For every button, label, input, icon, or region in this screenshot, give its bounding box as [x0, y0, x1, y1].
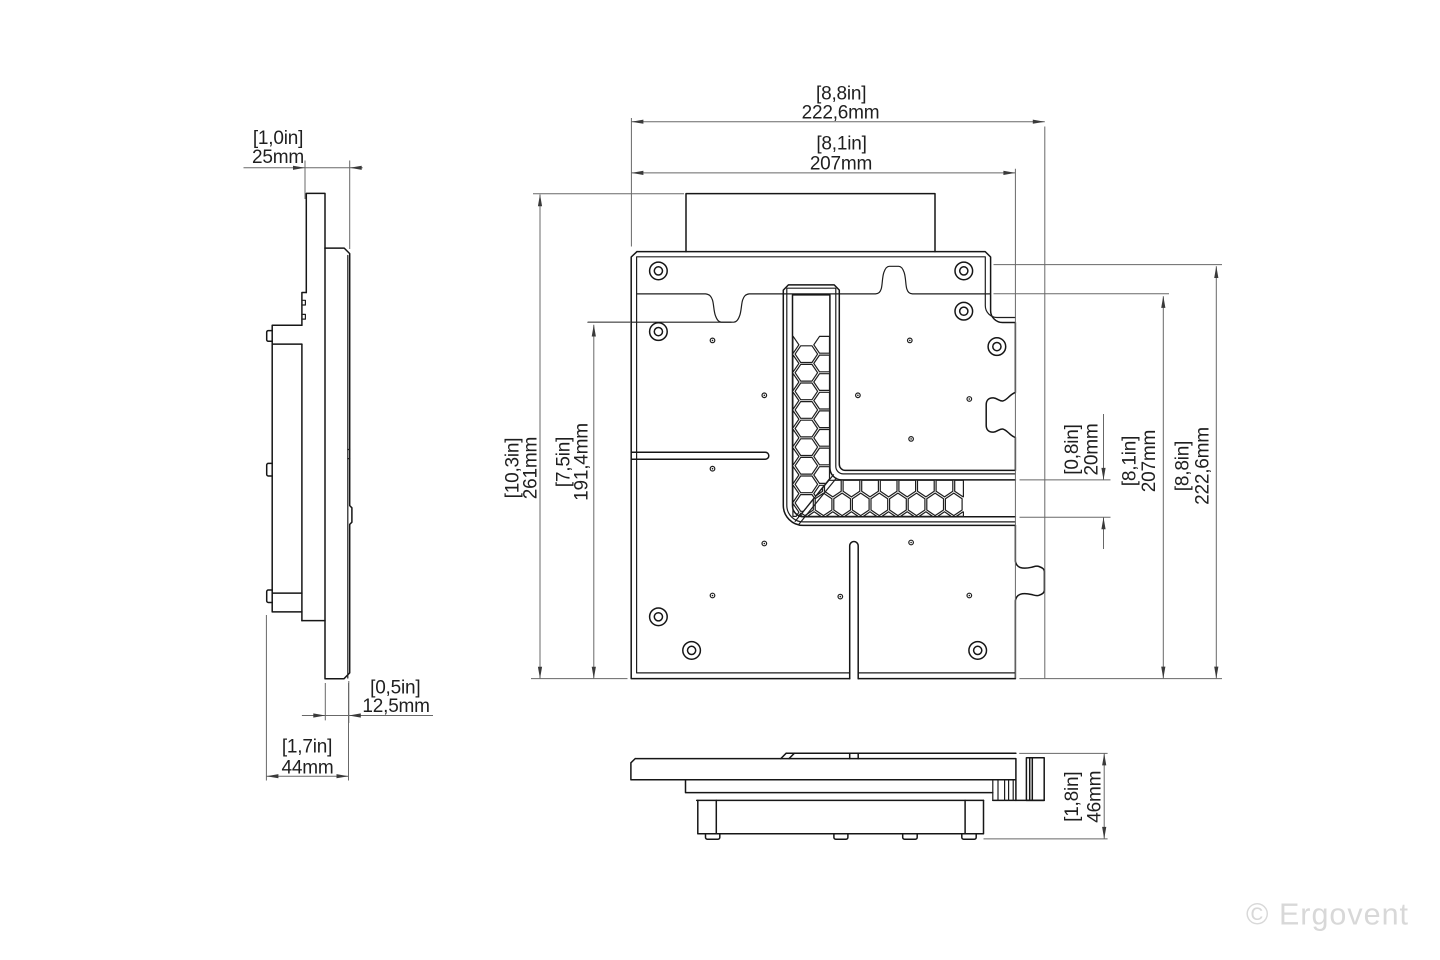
svg-text:20mm: 20mm [1082, 424, 1103, 476]
svg-text:207mm: 207mm [1139, 430, 1160, 492]
svg-text:[8,1in]: [8,1in] [1120, 436, 1141, 486]
svg-text:207mm: 207mm [810, 153, 872, 174]
svg-text:[8,8in]: [8,8in] [1173, 441, 1194, 491]
svg-text:[1,0in]: [1,0in] [253, 128, 303, 149]
svg-text:12,5mm: 12,5mm [362, 696, 429, 717]
svg-text:261mm: 261mm [521, 437, 542, 499]
svg-text:46mm: 46mm [1085, 771, 1106, 823]
svg-text:222,6mm: 222,6mm [802, 102, 880, 123]
svg-text:222,6mm: 222,6mm [1193, 427, 1214, 505]
svg-text:[0,8in]: [0,8in] [1062, 424, 1083, 474]
svg-text:44mm: 44mm [282, 758, 334, 779]
svg-text:[8,1in]: [8,1in] [816, 133, 866, 154]
svg-text:© Ergovent: © Ergovent [1246, 898, 1409, 932]
svg-text:[1,7in]: [1,7in] [282, 737, 332, 758]
svg-text:[1,8in]: [1,8in] [1062, 772, 1083, 822]
svg-text:25mm: 25mm [252, 147, 304, 168]
svg-text:191,4mm: 191,4mm [572, 423, 593, 501]
